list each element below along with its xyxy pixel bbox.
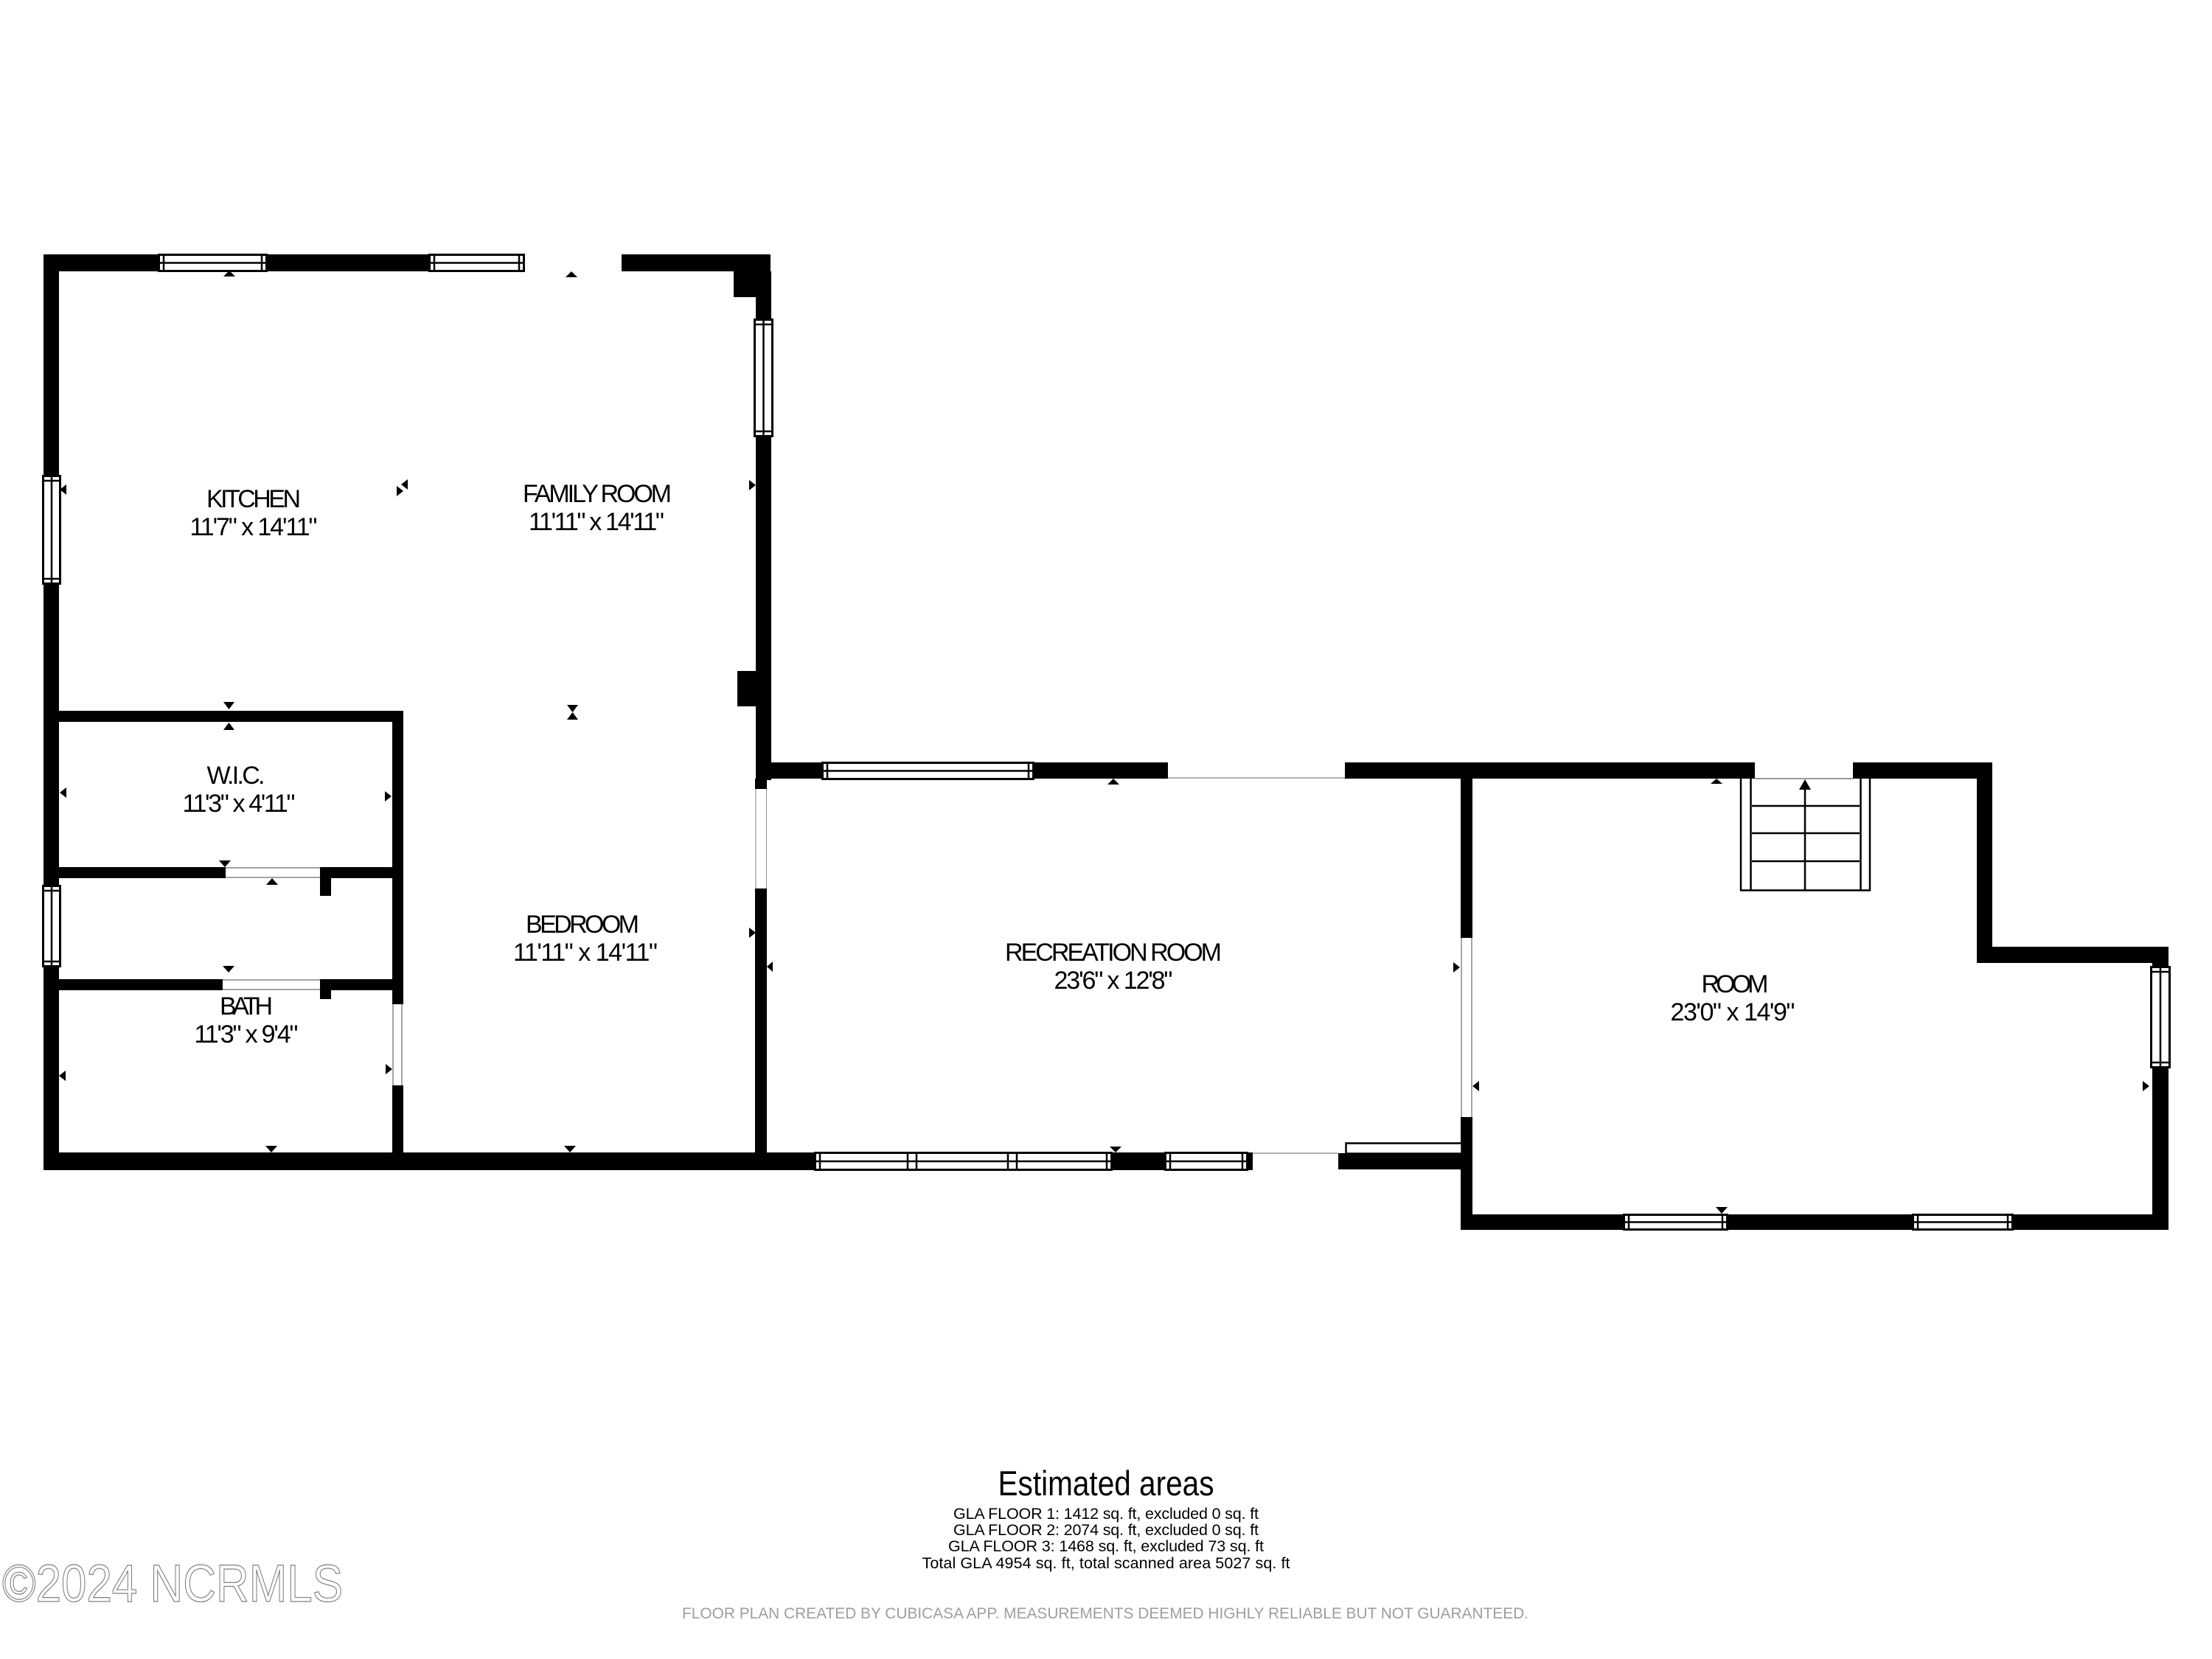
svg-text:GLA FLOOR 3: 1468 sq. ft, excl: GLA FLOOR 3: 1468 sq. ft, excluded 73 sq…: [948, 1537, 1264, 1555]
svg-text:KITCHEN: KITCHEN: [206, 485, 301, 513]
svg-text:©2024 NCRMLS: ©2024 NCRMLS: [2, 1555, 343, 1613]
svg-text:RECREATION ROOM: RECREATION ROOM: [1005, 939, 1222, 967]
svg-text:FLOOR PLAN CREATED BY CUBICASA: FLOOR PLAN CREATED BY CUBICASA APP. MEAS…: [682, 1605, 1528, 1622]
svg-text:11'11" x 14'11": 11'11" x 14'11": [513, 939, 658, 967]
svg-text:11'3" x 4'11": 11'3" x 4'11": [183, 790, 296, 818]
svg-text:Estimated areas: Estimated areas: [998, 1464, 1214, 1503]
svg-text:23'6" x 12'8": 23'6" x 12'8": [1054, 967, 1173, 995]
svg-text:BEDROOM: BEDROOM: [526, 911, 639, 939]
svg-text:11'7" x 14'11": 11'7" x 14'11": [190, 513, 318, 541]
svg-text:11'11" x 14'11": 11'11" x 14'11": [529, 508, 664, 536]
svg-text:GLA FLOOR 2: 2074 sq. ft, excl: GLA FLOOR 2: 2074 sq. ft, excluded 0 sq.…: [953, 1521, 1259, 1539]
svg-text:Total GLA 4954 sq. ft, total s: Total GLA 4954 sq. ft, total scanned are…: [922, 1554, 1290, 1572]
svg-text:W.I.C.: W.I.C.: [207, 762, 265, 790]
svg-text:ROOM: ROOM: [1702, 970, 1769, 998]
svg-text:BATH: BATH: [220, 992, 273, 1020]
svg-text:11'3" x 9'4": 11'3" x 9'4": [195, 1020, 299, 1048]
svg-text:FAMILY ROOM: FAMILY ROOM: [523, 480, 672, 508]
svg-text:GLA FLOOR 1: 1412 sq. ft, excl: GLA FLOOR 1: 1412 sq. ft, excluded 0 sq.…: [953, 1505, 1259, 1523]
svg-text:23'0" x 14'9": 23'0" x 14'9": [1671, 998, 1795, 1026]
